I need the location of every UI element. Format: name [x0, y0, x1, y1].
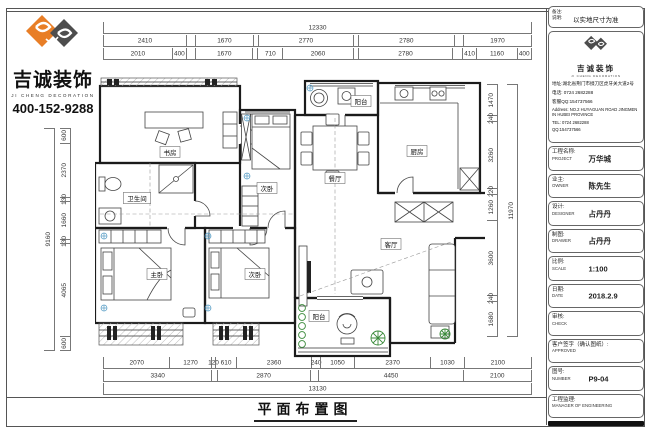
- dimension-segment: 3600: [487, 220, 498, 294]
- dimension-segment: 1270: [169, 357, 210, 369]
- dimension-segment: 2770: [258, 35, 353, 47]
- titleblock-row: 图号: NUMBER P9-04: [548, 366, 644, 391]
- svg-text:次卧: 次卧: [261, 184, 275, 193]
- company-phone: 400-152-9288: [10, 101, 96, 116]
- svg-text:次卧: 次卧: [249, 270, 263, 279]
- room-label: 主卧: [147, 269, 167, 280]
- dim-left-segments: 600237013016601304065600: [60, 128, 71, 351]
- company-logo-small-icon: [584, 35, 608, 57]
- dimension-segment: 1470: [487, 84, 498, 115]
- room-label: 书房: [160, 147, 180, 158]
- svg-text:阳台: 阳台: [313, 312, 326, 321]
- dim-bottom-row1: 2070127012061023602401050237010302100: [103, 357, 532, 369]
- row-value: 万华城: [588, 153, 611, 164]
- dimension-segment: 240: [311, 357, 320, 369]
- dim-right-segments: 14702403260220126036002401680: [487, 84, 498, 337]
- company-name: 吉诚装饰: [10, 65, 96, 92]
- company-tel-cn: 电话: 0724 2682288: [552, 90, 640, 96]
- room-label: 次卧: [245, 269, 265, 280]
- svg-text:卫生间: 卫生间: [127, 194, 147, 203]
- dimension-segment: 1030: [430, 357, 464, 369]
- row-label-en: CHECK: [552, 321, 640, 326]
- dimension-segment: [186, 35, 195, 47]
- company-address-en: Address: NO.2 HUYAGUAN ROAD JINGMEN IN H…: [552, 107, 640, 118]
- dim-top-row2: 24101670277027801970: [103, 35, 532, 47]
- dimension-segment: 2100: [463, 370, 532, 382]
- company-name-en-small: JI CHENG DECORATION: [552, 74, 640, 78]
- row-label-cn: 审核:: [552, 314, 640, 321]
- dimension-segment: 1680: [487, 301, 498, 336]
- titleblock-row: 工程监理: MANAGER OF ENGINEERING: [548, 394, 644, 419]
- dimension-segment: 600: [60, 336, 71, 351]
- titleblock-divider: [546, 8, 547, 425]
- dimension-segment: 1260: [487, 194, 498, 221]
- furniture-laundry: [311, 88, 356, 107]
- titleblock-row: 审核: CHECK: [548, 311, 644, 336]
- dimension-segment: 11970: [507, 84, 518, 336]
- row-label-en: APPROVED: [552, 348, 640, 353]
- note-box: 备注: 说明: 以实地尺寸为准: [548, 6, 644, 28]
- plan-title: 平面布置图: [155, 399, 455, 422]
- room-label: 阳台: [309, 311, 329, 322]
- titleblock-row: 日期: DATE 2018.2.9: [548, 284, 644, 309]
- dimension-segment: 2070: [103, 357, 169, 369]
- dimension-segment: 2370: [354, 357, 430, 369]
- note-value: 以实地尺寸为准: [573, 14, 619, 24]
- furniture-second-bedroom: [209, 230, 269, 298]
- svg-text:厨房: 厨房: [411, 147, 424, 156]
- furniture-study: [145, 112, 237, 148]
- titleblock-row: 业主: OWNER 陈先生: [548, 174, 644, 199]
- dim-top-overall: 12330: [103, 22, 532, 34]
- svg-text:阳台: 阳台: [355, 97, 368, 106]
- row-label-cn: 客户签字（确认图纸）:: [552, 342, 640, 349]
- titleblock-row: 制图: DRAWER 占丹丹: [548, 229, 644, 254]
- company-info-box: 吉诚装饰 JI CHENG DECORATION 地址:湖北省荆门市掇刀区虎牙关…: [548, 31, 644, 143]
- row-value: 2018.2.9: [588, 292, 617, 301]
- row-value: P9-04: [588, 374, 608, 383]
- dimension-segment: 400: [517, 48, 531, 60]
- dimension-segment: 9160: [44, 128, 55, 350]
- row-label-en: MANAGER OF ENGINEERING: [552, 403, 640, 408]
- brand-block: 吉诚装饰 JI CHENG DECORATION 400-152-9288: [10, 13, 96, 116]
- room-label: 次卧: [257, 183, 277, 194]
- room-label: 厨房: [407, 146, 427, 157]
- dimension-segment: 13130: [103, 383, 531, 395]
- titleblock-row: 客户签字（确认图纸）: APPROVED: [548, 339, 644, 364]
- svg-text:餐厅: 餐厅: [329, 174, 343, 183]
- svg-text:书房: 书房: [164, 148, 177, 157]
- row-value: 1:100: [588, 264, 607, 273]
- dimension-segment: 2870: [217, 370, 310, 382]
- row-value: 占丹丹: [588, 236, 611, 247]
- furniture-living: [299, 244, 455, 339]
- dimension-segment: 2410: [103, 35, 186, 47]
- titleblock-row: 比例: SCALE 1:100: [548, 256, 644, 281]
- furniture-kitchen: [380, 87, 479, 190]
- dimension-segment: [454, 35, 464, 47]
- furniture-top-bedroom: [242, 114, 291, 226]
- dimension-segment: 2360: [236, 357, 312, 369]
- floor-plan: 书房阳台次卧厨房餐厅客厅卫生间主卧次卧阳台: [95, 56, 485, 358]
- titleblock-bottom-bar: [548, 421, 644, 426]
- dimension-segment: 3260: [487, 121, 498, 188]
- room-label: 阳台: [351, 96, 371, 107]
- titleblock-row: 工程名称: PROJECT 万华城: [548, 146, 644, 171]
- room-label: 卫生间: [123, 193, 151, 204]
- company-name-en: JI CHENG DECORATION: [10, 93, 96, 98]
- room-label: 客厅: [381, 239, 401, 250]
- dimension-segment: 4065: [60, 243, 71, 335]
- dimension-segment: 3340: [103, 370, 211, 382]
- company-address-cn: 地址:湖北省荆门市掇刀区虎牙关大道2号: [552, 81, 640, 87]
- dimension-segment: 2370: [60, 143, 71, 197]
- company-logo-icon: [26, 13, 80, 63]
- dim-bottom-overall: 13130: [103, 383, 532, 395]
- dimension-segment: 2100: [464, 357, 531, 369]
- dim-left-overall: 9160: [44, 128, 55, 351]
- dimension-segment: 1660: [60, 201, 71, 239]
- dimension-segment: 1050: [320, 357, 354, 369]
- svg-text:主卧: 主卧: [151, 270, 165, 279]
- drawing-sheet: 吉诚装饰 JI CHENG DECORATION 400-152-9288 12…: [0, 0, 650, 433]
- dim-bottom-row2: 3340287044502100: [103, 370, 532, 382]
- titleblock-row: 设计: DESIGNER 占丹丹: [548, 201, 644, 226]
- dimension-segment: 12330: [103, 22, 531, 34]
- dimension-segment: 1670: [195, 35, 253, 47]
- dimension-segment: 610: [215, 357, 235, 369]
- svg-text:客厅: 客厅: [385, 240, 399, 249]
- dimension-segment: 600: [60, 128, 71, 143]
- dimension-segment: [310, 370, 319, 382]
- dimension-segment: 2780: [358, 35, 453, 47]
- drawing-bottom-line: [6, 397, 546, 398]
- room-label: 餐厅: [325, 173, 345, 184]
- dimension-segment: 1970: [463, 35, 531, 47]
- company-qq-cn: 客服QQ:154737566: [552, 99, 640, 105]
- company-name-small: 吉诚装饰: [552, 63, 640, 74]
- company-qq-en: QQ:154737566: [552, 127, 640, 132]
- dimension-segment: 4450: [318, 370, 462, 382]
- dim-right-overall: 11970: [507, 84, 518, 337]
- row-value: 陈先生: [588, 181, 611, 192]
- row-value: 占丹丹: [588, 208, 611, 219]
- row-label-cn: 工程监理:: [552, 397, 640, 404]
- title-block: 备注: 说明: 以实地尺寸为准 吉诚装饰 JI CHENG DECORATION…: [548, 6, 644, 426]
- company-tel-en: TEL: 0724 2682288: [552, 120, 640, 125]
